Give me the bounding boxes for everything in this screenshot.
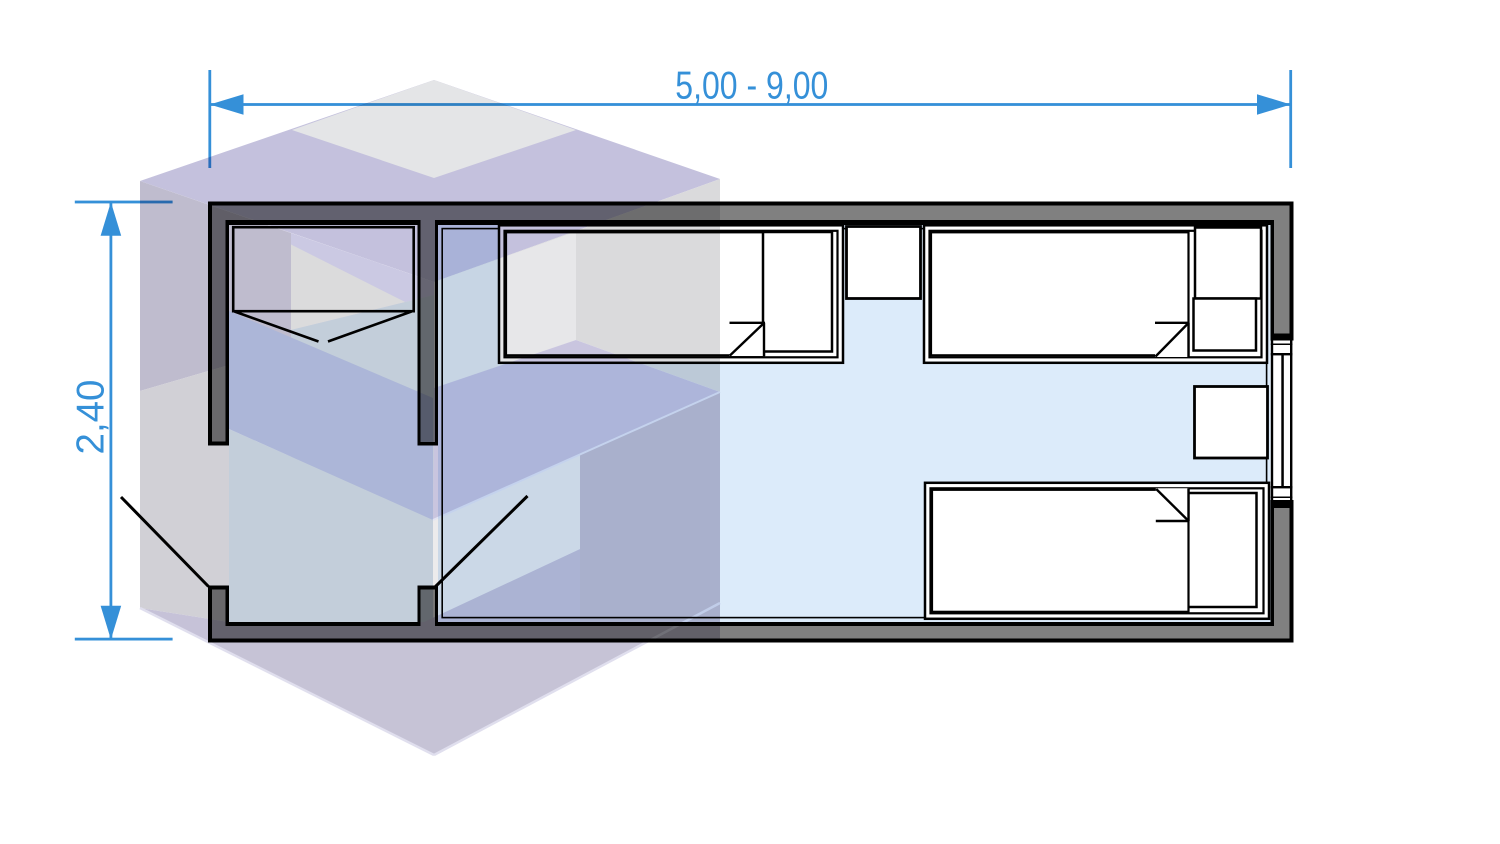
svg-text:5,00 - 9,00: 5,00 - 9,00	[675, 65, 828, 108]
svg-text:2,40: 2,40	[70, 380, 113, 455]
